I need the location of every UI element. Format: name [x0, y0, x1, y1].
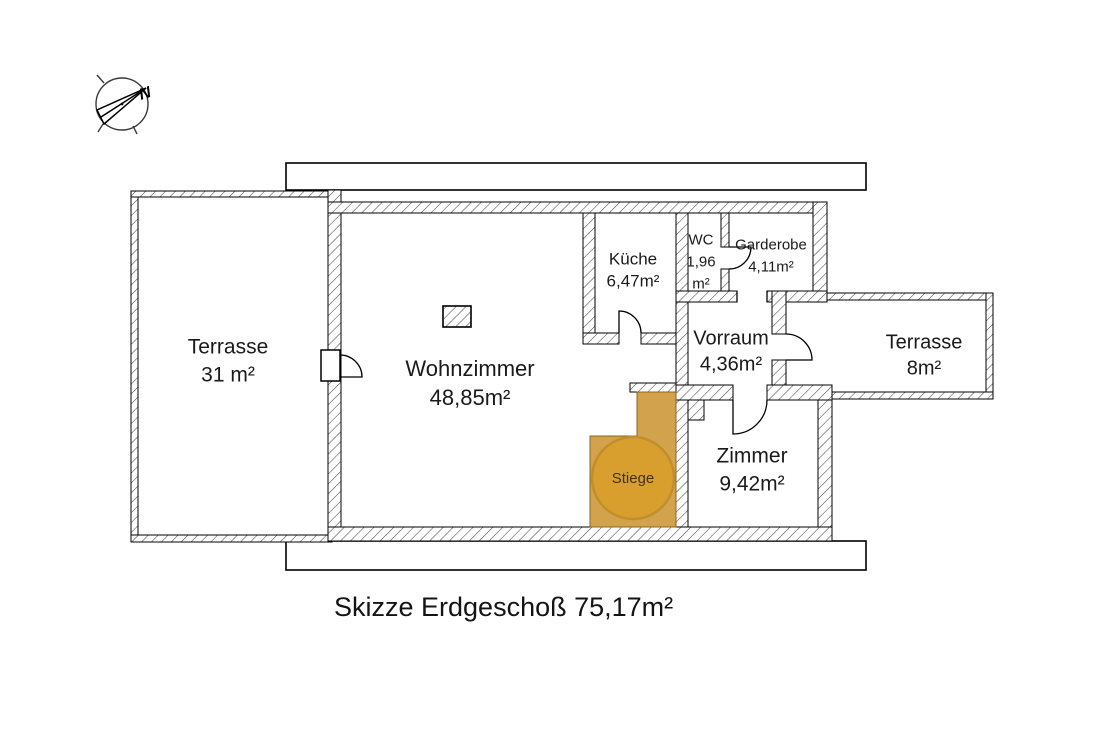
room-name: Wohnzimmer	[405, 354, 534, 383]
room-name: Stiege	[612, 469, 655, 489]
room-name: Zimmer	[716, 442, 787, 470]
room-area: 48,85m²	[405, 383, 534, 412]
room-label-wohnzimmer: Wohnzimmer 48,85m²	[405, 354, 534, 412]
wall-kueche-bottom-a	[583, 333, 619, 344]
room-label-stiege: Stiege	[612, 469, 655, 489]
compass-icon: N	[96, 75, 154, 134]
wall-wc-garderobe-a	[721, 213, 729, 247]
wall-vorraum-right-a	[772, 291, 786, 334]
floorplan-page: N Terrasse 31 m² Wohnzimmer 48,85m² Küch…	[0, 0, 1110, 740]
stairs	[590, 392, 676, 527]
wall-right-lower	[818, 398, 832, 541]
room-label-terrasse-links: Terrasse 31 m²	[188, 333, 269, 388]
wall-kueche-left	[583, 213, 595, 344]
room-label-wc: WC 1,96 m²	[686, 229, 715, 294]
wall-right-upper	[813, 202, 827, 302]
chimney	[443, 306, 471, 327]
room-name: Küche	[607, 249, 660, 271]
room-label-garderobe: Garderobe 4,11m²	[735, 234, 807, 278]
wall-zimmer-notch	[688, 400, 704, 420]
wall-bottom	[328, 527, 832, 541]
room-name: Terrasse	[188, 333, 269, 361]
wall-zimmer-top-a	[676, 385, 733, 400]
room-area: 6,47m²	[607, 271, 660, 293]
room-label-zimmer: Zimmer 9,42m²	[716, 442, 787, 497]
room-area: 9,42m²	[716, 470, 787, 498]
door-vorraum-terrasse	[786, 334, 812, 360]
plan-caption: Skizze Erdgeschoß 75,17m²	[334, 592, 673, 623]
room-name: Terrasse	[886, 330, 963, 356]
room-area: 31 m²	[188, 361, 269, 389]
room-area-unit: m²	[686, 273, 715, 295]
room-name: Garderobe	[735, 234, 807, 256]
wall-zimmer-top-b	[767, 385, 832, 400]
room-name: Vorraum	[693, 326, 769, 352]
wall-top	[328, 202, 827, 213]
compass-north-label: N	[137, 84, 154, 104]
top-slab	[286, 163, 866, 190]
door-kueche	[619, 311, 641, 333]
room-area: 1,96	[686, 251, 715, 273]
room-area: 4,11m²	[735, 256, 807, 278]
room-name: WC	[686, 229, 715, 251]
wall-kueche-bottom-b	[641, 333, 676, 344]
bottom-slab	[286, 541, 866, 570]
wall-stiege-top	[630, 383, 676, 392]
room-label-terrasse-rechts: Terrasse 8m²	[886, 330, 963, 383]
room-area: 4,36m²	[693, 352, 769, 378]
wall-wc-garderobe-b	[721, 269, 729, 291]
door-vorraum-opening	[737, 291, 767, 302]
door-zimmer	[733, 400, 767, 434]
room-area: 8m²	[886, 356, 963, 382]
room-label-vorraum: Vorraum 4,36m²	[693, 326, 769, 379]
room-label-kueche: Küche 6,47m²	[607, 249, 660, 294]
